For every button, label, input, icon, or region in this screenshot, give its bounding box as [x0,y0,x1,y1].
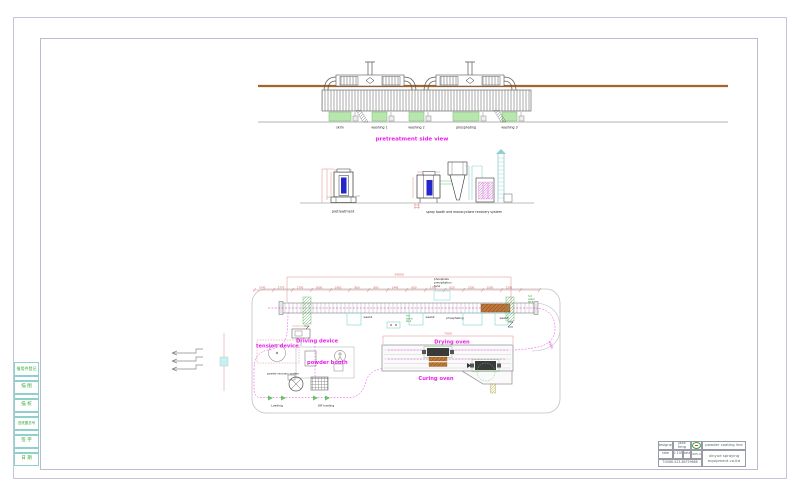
workpiece-core [341,178,347,194]
valve-dot [390,324,392,326]
filter-grid [311,377,328,390]
section-mark [508,322,513,327]
plan-label-phosphating: phosphating [446,316,464,320]
tank-label-washing2: washing 2 [408,126,424,130]
dim: 620 [450,285,455,289]
tank-label-washing1: washing 1 [371,126,387,130]
valve-dot [395,324,397,326]
plan-label-wash3: wash3 [499,316,508,320]
phone-number: T:0086-523-86759666 [658,459,702,468]
project-title: powder coating line [702,441,746,450]
company-logo [691,441,702,450]
loading-arrows [268,396,330,401]
exhaust-chimney [496,149,512,202]
date-value: 2005.07 [691,450,702,459]
dim: 3000 [316,285,323,289]
designer-label: designer [658,441,673,450]
dim: 2770 [278,285,285,289]
dim: 1500 [259,285,266,289]
burner-unit [475,361,496,370]
pretreatment-section: pretreatment [322,169,360,214]
loading-label: Loading [271,404,283,408]
side-view-title: pretreatment side view [376,137,449,143]
total-dimension: 24050 [394,273,404,277]
oven-dimension: 7500 [444,332,452,336]
powder-booth-label: powder booth [307,360,348,366]
flow-arrows [172,349,203,371]
cyclone-funnel [450,175,465,200]
dim: 1950 [335,285,342,289]
scale-value: 1:100 [673,450,683,459]
dim: 1445 [392,285,399,289]
dim: 860 [355,285,360,289]
heater-bank [429,357,447,361]
burner-unit [427,348,449,356]
cad-drawing: skim washing 1 washing 2 phosphating was… [0,0,800,493]
spray-booth-label: spray booth and monocyclone recovery sys… [426,210,502,214]
heated-section [481,304,510,312]
drawing-sheet: 借用件登记 描 图 描 校 旧底图总号 签 字 日 期 [0,0,800,493]
tank-label-washing3: washing 3 [501,126,517,130]
plan-view: 24050 1500 2770 1700 3000 1950 860 895 1… [172,273,560,414]
plan-label-wash2: wash2 [425,315,434,319]
note-line: tank [528,301,534,304]
note-line: tank [434,284,441,288]
elevation-views: pretreatment [300,149,534,214]
plan-label-wash1: wash1 [363,315,372,319]
drive-station [303,297,311,324]
pretreatment-label: pretreatment [332,210,355,214]
scale-label: rate [658,450,673,459]
exhaust-hood [424,62,516,90]
workpiece-core [427,180,433,196]
dim: 1700 [297,285,304,289]
recovery-fan [288,375,303,391]
title-block: designer jake feng powder coating line r… [658,441,746,467]
pretreatment-side-view: skim washing 1 washing 2 phosphating was… [258,62,728,143]
offloading-label: Off loading [318,404,335,408]
spray-booth-system: spray booth and monocyclone recovery sys… [413,149,512,214]
section-marker [220,357,228,366]
dim: 600 [412,285,417,289]
logo-ellipse-icon [692,442,701,449]
tank-label-phosphating: phosphating [456,126,476,130]
driving-device-label: Driving device [296,339,338,345]
dim: 895 [374,285,379,289]
dim: 1500 [468,285,475,289]
designer-value: jake feng [673,441,691,450]
dimension-chain: 24050 1500 2770 1700 3000 1950 860 895 1… [253,273,541,303]
heater-bank [429,363,447,367]
drying-oven-label: Drying oven [434,340,470,346]
tank-label-skim: skim [336,126,344,130]
company-name: xinyue spraying equipment co.ltd [702,450,746,467]
dim: 2200 [506,285,513,289]
company-line2: equipment co.ltd [708,459,740,463]
tension-device-label: tension device [256,344,299,350]
support-post [491,384,496,393]
conveyor-band [322,90,531,111]
date-label: date [683,450,691,459]
curing-oven-label: Curing oven [418,376,454,382]
exhaust-hood [324,62,416,90]
cyclone-body [448,162,467,175]
note-line: tank [406,320,412,323]
dim: 2500 [487,285,494,289]
radius-label: R900 [547,341,554,350]
